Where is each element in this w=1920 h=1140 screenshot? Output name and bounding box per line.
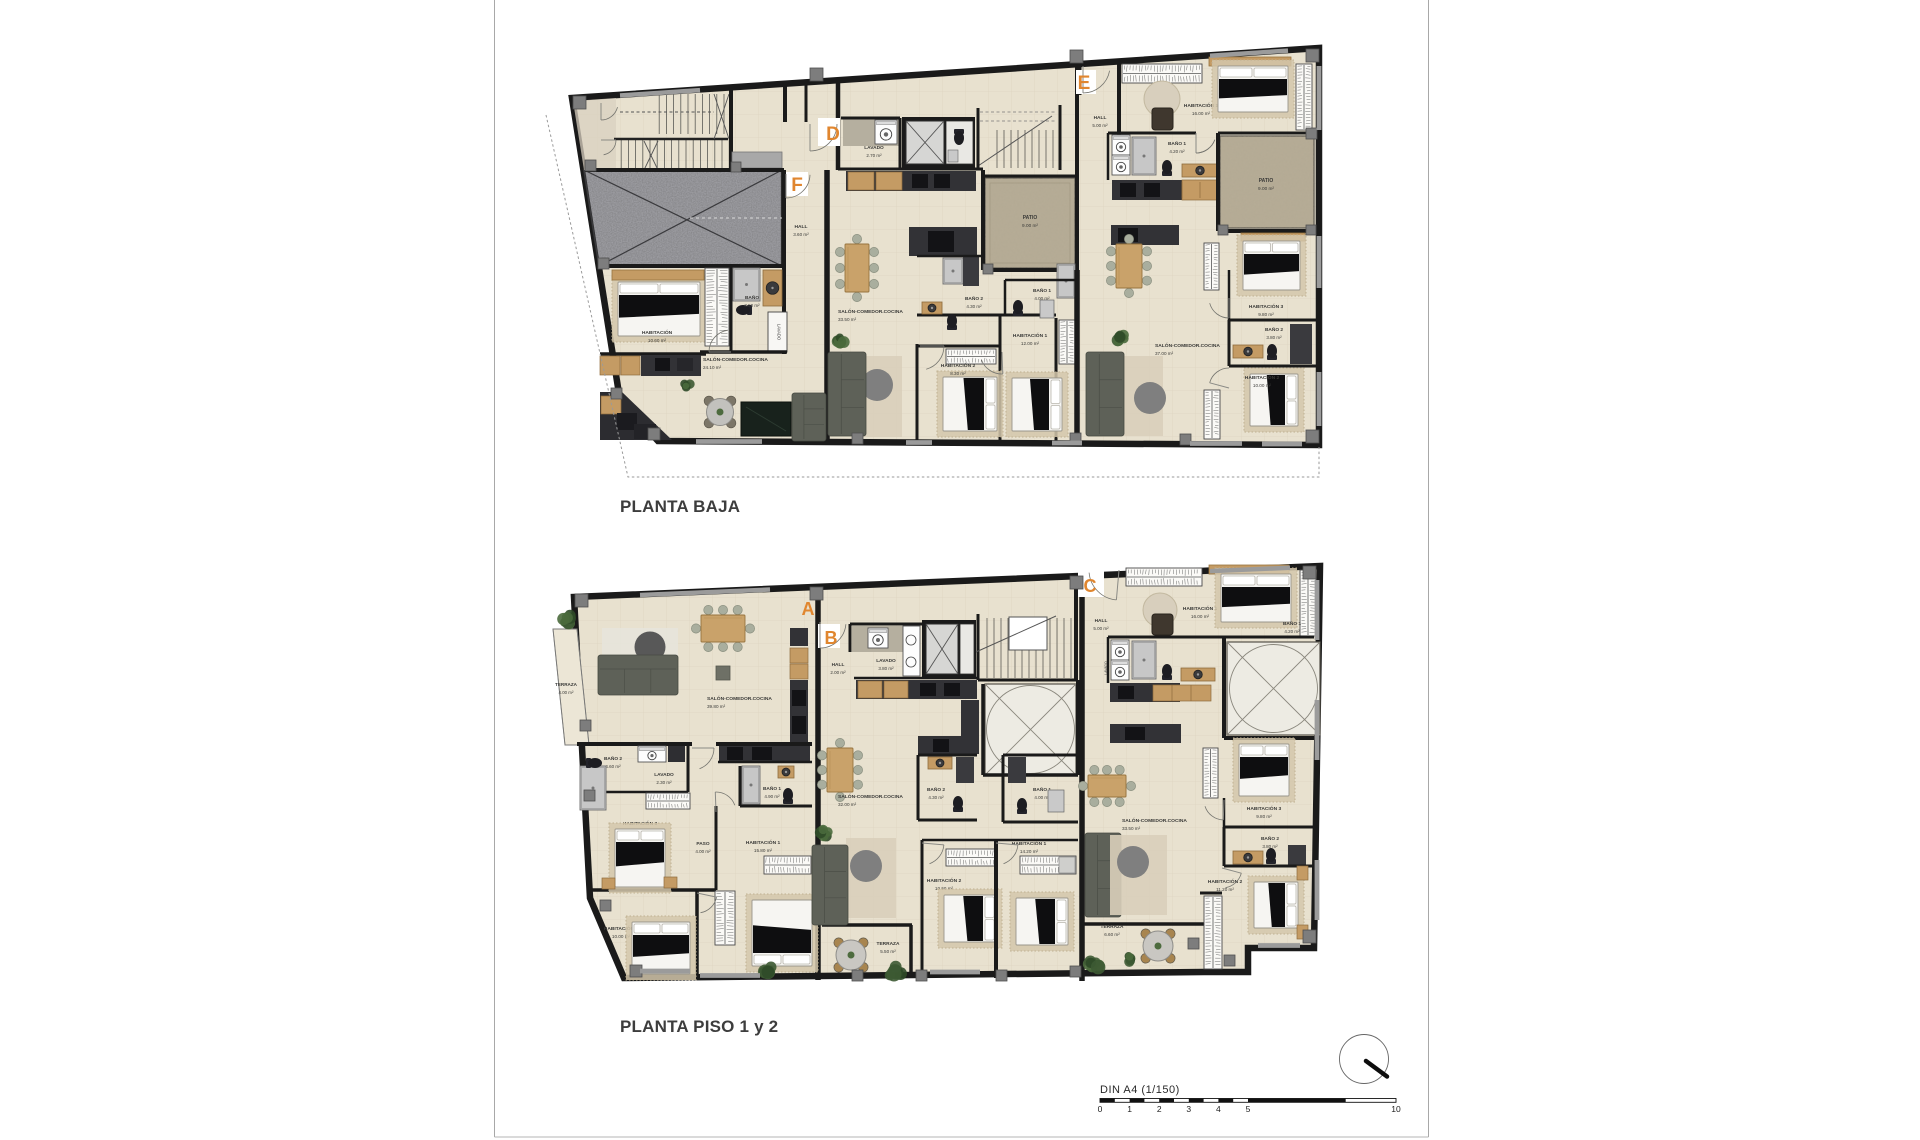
svg-text:BAÑO 1: BAÑO 1 <box>763 785 781 792</box>
svg-text:TERRAZA: TERRAZA <box>1101 924 1124 930</box>
svg-text:2: 2 <box>1157 1104 1162 1114</box>
svg-text:HALL: HALL <box>832 662 845 668</box>
svg-text:9.80 m²: 9.80 m² <box>1258 312 1274 317</box>
svg-text:3.80 m²: 3.80 m² <box>1266 335 1282 340</box>
svg-text:PLANTA BAJA: PLANTA BAJA <box>620 497 740 516</box>
svg-text:BAÑO 2: BAÑO 2 <box>1261 835 1279 842</box>
svg-text:BAÑO 2: BAÑO 2 <box>965 295 983 302</box>
svg-text:PATIO: PATIO <box>1023 215 1038 221</box>
svg-text:3.80 m²: 3.80 m² <box>1262 844 1278 849</box>
svg-text:4.30 m²: 4.30 m² <box>928 795 944 800</box>
svg-text:4.30 m²: 4.30 m² <box>966 304 982 309</box>
svg-text:0: 0 <box>1098 1104 1103 1114</box>
svg-text:11.20 m²: 11.20 m² <box>1216 887 1234 892</box>
svg-text:12.00 m²: 12.00 m² <box>1021 341 1040 346</box>
svg-text:4.60 m²: 4.60 m² <box>605 764 621 769</box>
svg-text:BAÑO 2: BAÑO 2 <box>1265 326 1283 333</box>
svg-text:3: 3 <box>1186 1104 1191 1114</box>
svg-text:BAÑO 1: BAÑO 1 <box>1283 620 1301 627</box>
svg-text:10.00 m²: 10.00 m² <box>1253 383 1272 388</box>
svg-text:4: 4 <box>1216 1104 1221 1114</box>
svg-text:HALL: HALL <box>1094 115 1107 121</box>
svg-text:37.00 m²: 37.00 m² <box>1155 351 1174 356</box>
svg-text:4.00 m²: 4.00 m² <box>695 849 711 854</box>
svg-text:B: B <box>825 628 838 648</box>
svg-text:TERRAZA: TERRAZA <box>555 682 578 687</box>
svg-text:4.90 m²: 4.90 m² <box>764 794 780 799</box>
svg-text:BAÑO 2: BAÑO 2 <box>604 755 622 762</box>
svg-text:E: E <box>1078 73 1091 94</box>
svg-text:9.80 m²: 9.80 m² <box>1256 814 1272 819</box>
svg-text:33.50 m²: 33.50 m² <box>838 317 857 322</box>
svg-text:PASO: PASO <box>696 841 710 847</box>
svg-text:10: 10 <box>1391 1104 1401 1114</box>
svg-text:D: D <box>826 124 840 145</box>
svg-text:3.80 m²: 3.80 m² <box>878 666 894 671</box>
svg-text:DIN A4 (1/150): DIN A4 (1/150) <box>1100 1084 1180 1096</box>
svg-text:32.00 m²: 32.00 m² <box>838 802 857 807</box>
svg-text:4.20 m²: 4.20 m² <box>1284 629 1300 634</box>
svg-text:LAVADO: LAVADO <box>864 145 884 151</box>
svg-text:10.60 m²: 10.60 m² <box>648 338 667 343</box>
svg-text:16.00 m²: 16.00 m² <box>1191 614 1210 619</box>
svg-text:5.00 m²: 5.00 m² <box>1092 123 1108 128</box>
svg-text:F: F <box>791 175 803 196</box>
svg-text:4.00 m²: 4.00 m² <box>559 690 574 695</box>
svg-text:LAVADO: LAVADO <box>876 658 896 664</box>
svg-text:15.80 m²: 15.80 m² <box>754 848 773 853</box>
svg-text:3.50 m²: 3.50 m² <box>744 303 760 308</box>
svg-text:16.00 m²: 16.00 m² <box>1192 111 1211 116</box>
svg-text:4.20 m²: 4.20 m² <box>1169 149 1185 154</box>
svg-text:BAÑO 1: BAÑO 1 <box>1168 140 1186 147</box>
svg-text:HALL: HALL <box>794 224 807 230</box>
svg-text:LAVADO: LAVADO <box>777 324 782 341</box>
svg-text:24.10 m²: 24.10 m² <box>703 365 722 370</box>
svg-text:14.20 m²: 14.20 m² <box>1020 849 1039 854</box>
svg-text:2.30 m²: 2.30 m² <box>656 780 672 785</box>
svg-text:8.30 m²: 8.30 m² <box>950 371 966 376</box>
svg-text:6.60 m²: 6.60 m² <box>1104 932 1120 937</box>
svg-text:BAÑO: BAÑO <box>745 294 759 301</box>
svg-text:BAÑO 2: BAÑO 2 <box>927 786 945 793</box>
svg-text:1: 1 <box>1127 1104 1132 1114</box>
svg-text:LAVADO: LAVADO <box>654 772 674 778</box>
svg-text:2.00 m²: 2.00 m² <box>830 670 846 675</box>
svg-text:5.00 m²: 5.00 m² <box>1093 626 1109 631</box>
svg-text:BAÑO 1: BAÑO 1 <box>1033 287 1051 294</box>
svg-text:5: 5 <box>1246 1104 1251 1114</box>
svg-text:2.70 m²: 2.70 m² <box>866 153 882 158</box>
svg-text:39.80 m²: 39.80 m² <box>707 704 726 709</box>
svg-text:3.60 m²: 3.60 m² <box>793 232 809 237</box>
svg-text:HALL: HALL <box>1095 618 1108 624</box>
svg-text:9.00 m²: 9.00 m² <box>1258 186 1274 191</box>
svg-text:PLANTA PISO 1 y 2: PLANTA PISO 1 y 2 <box>620 1017 778 1036</box>
svg-text:C: C <box>1084 576 1097 596</box>
svg-text:TERRAZA: TERRAZA <box>877 941 900 947</box>
svg-text:LAVADO: LAVADO <box>1104 661 1108 675</box>
svg-text:A: A <box>802 599 815 619</box>
svg-text:9.00 m²: 9.00 m² <box>1022 223 1038 228</box>
svg-text:PATIO: PATIO <box>1259 178 1274 184</box>
svg-text:5.50 m²: 5.50 m² <box>880 949 896 954</box>
svg-text:33.50 m²: 33.50 m² <box>1122 826 1141 831</box>
